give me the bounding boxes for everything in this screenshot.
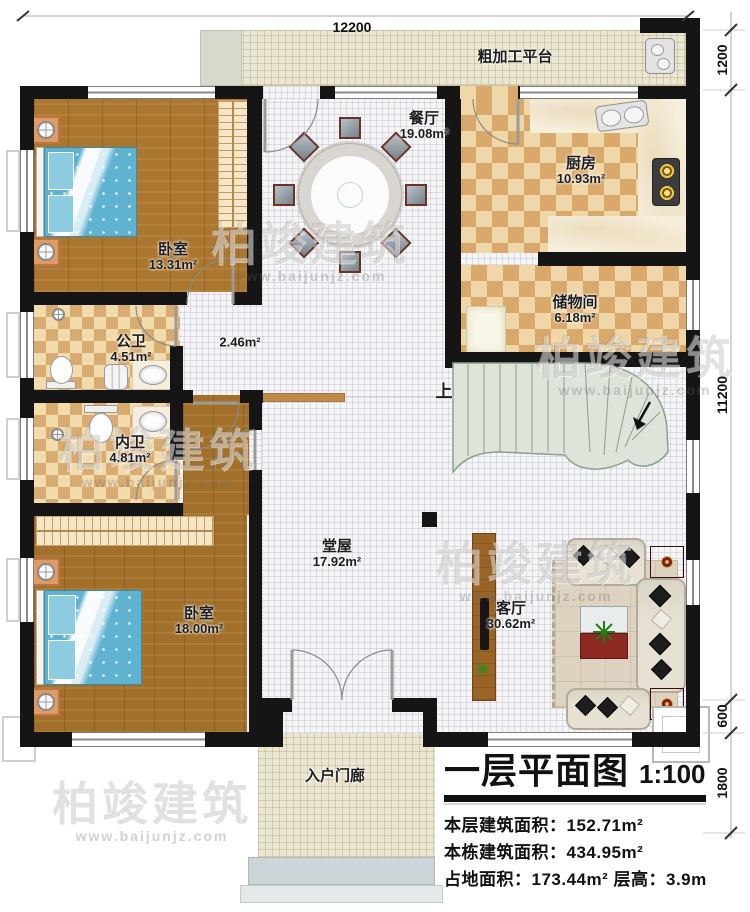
- wall-bath-mid: [20, 390, 193, 403]
- door-gap: [263, 86, 320, 99]
- wall-bath1-right: [170, 346, 183, 390]
- toilet-symbol: [84, 405, 118, 413]
- pillow: [48, 595, 76, 635]
- room-label-platform: 粗加工平台: [477, 48, 552, 65]
- room-label-bedroom1: 卧室 13.31m²: [149, 241, 197, 273]
- porch-step: [248, 857, 435, 885]
- pillow: [48, 640, 76, 680]
- room-label-storage: 储物间 6.18m²: [552, 294, 597, 326]
- window: [686, 560, 700, 605]
- door-gap: [460, 86, 518, 99]
- wall-platform-right: [686, 18, 700, 86]
- lamp-icon: [37, 693, 55, 711]
- floor-plan: 柏竣建筑 www.baijunjz.com 柏竣建筑 www.baijunjz.…: [0, 0, 750, 912]
- side-table: [650, 546, 684, 578]
- wood-beam: [262, 393, 345, 402]
- lamp-icon: [51, 428, 64, 441]
- stair-up-label: 上: [436, 382, 453, 402]
- sink-basin: [657, 58, 670, 70]
- dining-chair: [273, 184, 295, 206]
- title-block: 一层平面图 1:100 本层建筑面积：152.71m² 本栋建筑面积：434.9…: [444, 753, 706, 894]
- wall-storage-bottom: [447, 352, 686, 367]
- sink-basin: [600, 108, 622, 128]
- dining-table-center: [337, 182, 363, 208]
- stat-building-area: 本栋建筑面积：434.95m²: [444, 839, 706, 866]
- wardrobe: [36, 516, 214, 546]
- window-sill: [6, 558, 20, 622]
- window: [686, 280, 700, 330]
- room-label-bedroom2: 卧室 18.00m²: [175, 605, 223, 637]
- wall-bedroom1-right: [247, 86, 262, 292]
- window: [686, 440, 700, 493]
- dim-right-1200: 1200: [714, 44, 730, 75]
- watermark: 柏竣建筑 www.baijunjz.com: [52, 768, 252, 844]
- room-label-corridor: 2.46m²: [219, 336, 260, 351]
- lamp-icon: [37, 563, 55, 581]
- plan-scale: 1:100: [639, 761, 706, 789]
- wall-kitchen-bottom: [538, 252, 686, 266]
- title-underline: [444, 795, 706, 802]
- sink-basin: [139, 411, 167, 432]
- toilet-symbol: [50, 356, 73, 384]
- title-underline-light: [444, 803, 706, 805]
- wall-bath2-right: [170, 403, 183, 460]
- lamp-icon: [37, 243, 55, 261]
- lamp-icon: [52, 308, 65, 321]
- dim-right-1800: 1800: [714, 767, 730, 798]
- room-label-hall: 堂屋 17.92m²: [313, 538, 361, 570]
- stove-symbol: [652, 158, 680, 206]
- window: [335, 86, 437, 99]
- window: [72, 732, 205, 747]
- bedroom2-nook-floor: [183, 395, 249, 515]
- plan-title: 一层平面图: [444, 753, 629, 789]
- lamp-icon: [37, 121, 55, 139]
- wall-bedroom1-bottom: [20, 292, 187, 305]
- burner-icon: [659, 163, 675, 179]
- dim-top: 12200: [333, 19, 372, 35]
- wall-bedroom1-bottom: [233, 292, 262, 305]
- window: [88, 86, 215, 99]
- room-label-kitchen: 厨房 10.93m²: [557, 155, 605, 187]
- pillow: [48, 152, 74, 190]
- window: [20, 418, 34, 480]
- burner-icon: [659, 185, 675, 201]
- platform-counter: [200, 30, 242, 86]
- dining-chair: [405, 184, 427, 206]
- room-label-bath1: 公卫 4.51m²: [110, 333, 151, 365]
- storage-cabinet: [466, 306, 506, 354]
- stat-floor-area: 本层建筑面积：152.71m²: [444, 812, 706, 839]
- room-label-living: 客厅 30.62m²: [487, 600, 535, 632]
- water-heater-symbol: [104, 364, 128, 390]
- window-sill: [6, 150, 20, 232]
- wall-entrance-corner: [423, 698, 437, 747]
- dim-right-600: 600: [714, 704, 730, 727]
- wall-bath2-bottom: [20, 503, 183, 516]
- sink-basin: [139, 365, 167, 385]
- room-label-dining: 餐厅 19.08m²: [400, 110, 448, 142]
- window-sill: [6, 418, 20, 480]
- window: [20, 312, 34, 378]
- platform-floor: [200, 30, 686, 86]
- coffee-table: [580, 606, 628, 633]
- kitchen-counter-bottom: [548, 216, 686, 253]
- wardrobe: [218, 100, 248, 228]
- watermark-brand: 柏竣建筑: [52, 768, 252, 834]
- bed-headboard: [36, 590, 44, 685]
- watermark-url: www.baijunjz.com: [52, 828, 252, 844]
- dining-chair: [339, 251, 361, 273]
- window: [520, 86, 638, 99]
- window-sill: [6, 312, 20, 378]
- wall-hall-left: [249, 470, 262, 733]
- door-gap: [249, 430, 262, 470]
- dining-chair: [339, 117, 361, 139]
- room-label-porch: 入户门廊: [305, 767, 365, 784]
- dim-right-11200: 11200: [714, 376, 730, 414]
- stat-footprint-height: 占地面积：173.44m² 层高：3.9m: [444, 866, 706, 893]
- structural-column: [422, 512, 437, 527]
- pillow: [48, 195, 74, 233]
- sink-basin: [651, 44, 664, 56]
- porch-step: [240, 885, 443, 903]
- room-label-bath2: 内卫 4.81m²: [109, 434, 150, 466]
- sink-basin: [623, 105, 645, 125]
- window: [488, 732, 632, 747]
- window: [20, 150, 34, 232]
- window: [20, 558, 34, 622]
- platform-sink-symbol: [645, 38, 675, 74]
- wall-right: [686, 86, 700, 747]
- bed-headboard: [36, 147, 44, 237]
- coffee-table: [580, 633, 628, 659]
- wall-bath-mid: [240, 390, 263, 403]
